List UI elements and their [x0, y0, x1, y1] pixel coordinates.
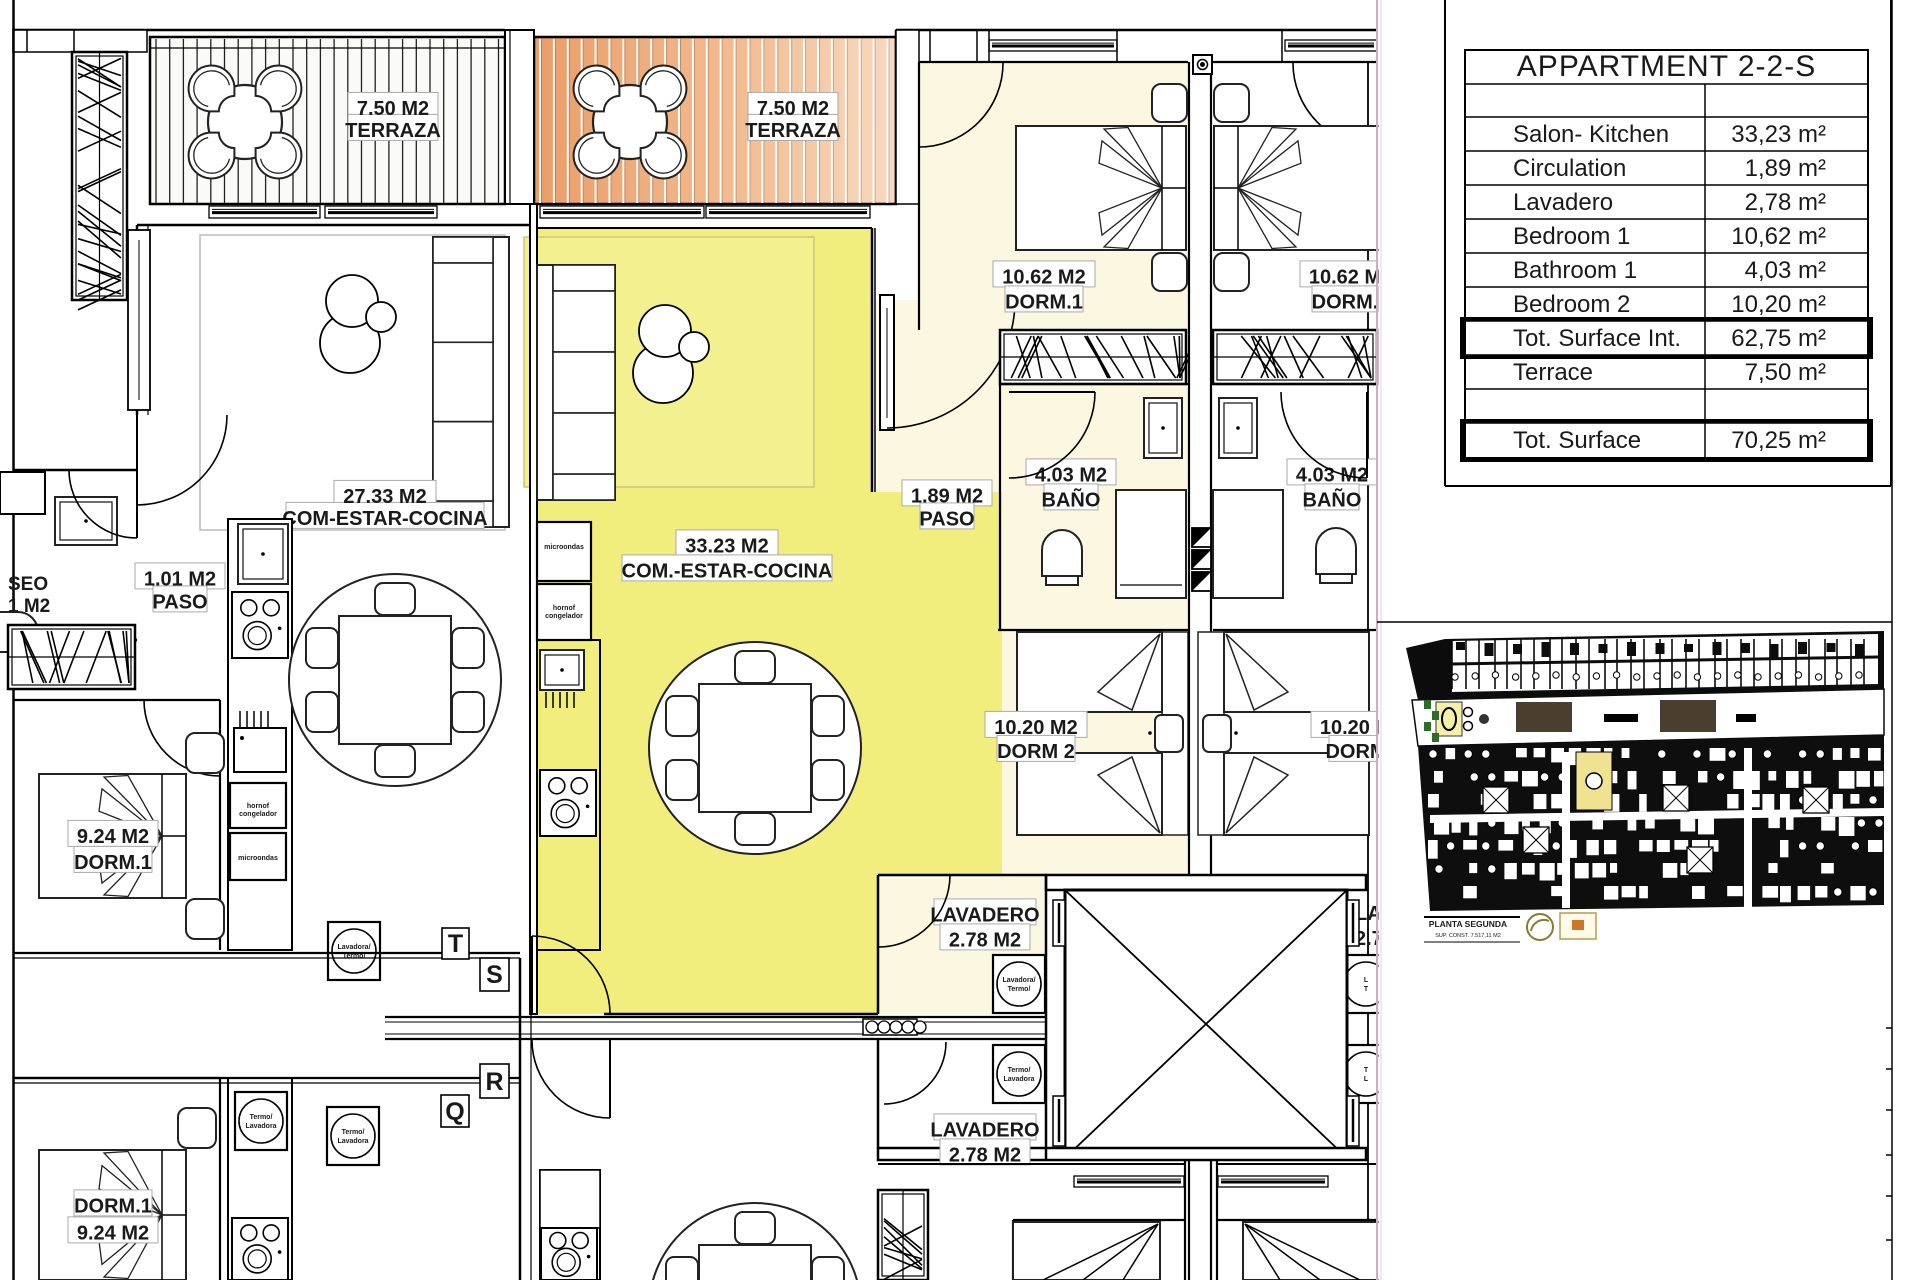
- svg-text:10,20 m²: 10,20 m²: [1731, 291, 1826, 318]
- svg-text:9.24 M2: 9.24 M2: [77, 1223, 149, 1245]
- svg-text:Tot. Surface: Tot. Surface: [1513, 427, 1641, 454]
- svg-text:R: R: [485, 1068, 503, 1096]
- svg-text:Circulation: Circulation: [1513, 155, 1626, 182]
- svg-text:7.50 M2: 7.50 M2: [757, 98, 829, 120]
- svg-text:SUP. CONST. 7.517,11 M2: SUP. CONST. 7.517,11 M2: [1435, 933, 1501, 939]
- svg-text:9.24 M2: 9.24 M2: [77, 826, 149, 848]
- svg-text:33.23 M2: 33.23 M2: [685, 536, 768, 558]
- svg-text:S: S: [486, 961, 503, 989]
- svg-text:T: T: [448, 930, 463, 958]
- svg-text:TERRAZA: TERRAZA: [745, 120, 841, 142]
- svg-text:Bathroom 1: Bathroom 1: [1513, 257, 1637, 284]
- svg-text:TERRAZA: TERRAZA: [345, 120, 441, 142]
- svg-text:Termo/: Termo/: [250, 1114, 273, 1121]
- svg-text:1.89 M2: 1.89 M2: [911, 486, 983, 508]
- svg-text:62,75 m²: 62,75 m²: [1731, 325, 1826, 352]
- svg-text:Termo/: Termo/: [1008, 1067, 1031, 1074]
- svg-text:hornof: hornof: [247, 803, 270, 810]
- svg-text:Lavadora: Lavadora: [1003, 1076, 1034, 1083]
- svg-text:7,50 m²: 7,50 m²: [1745, 359, 1826, 386]
- svg-text:Salon- Kitchen: Salon- Kitchen: [1513, 121, 1669, 148]
- svg-text:DORM.1: DORM.1: [74, 1196, 152, 1218]
- svg-text:10.62 M2: 10.62 M2: [1002, 267, 1085, 289]
- svg-text:27.33 M2: 27.33 M2: [343, 486, 426, 508]
- svg-text:2.78 M2: 2.78 M2: [949, 930, 1021, 952]
- svg-text:Lavadero: Lavadero: [1513, 189, 1613, 216]
- svg-text:70,25 m²: 70,25 m²: [1731, 427, 1826, 454]
- svg-text:Termo/: Termo/: [342, 1129, 365, 1136]
- svg-text:BAÑO: BAÑO: [1042, 489, 1101, 512]
- svg-text:COM-ESTAR-COCINA: COM-ESTAR-COCINA: [282, 508, 487, 530]
- svg-text:T: T: [1364, 1067, 1369, 1074]
- svg-text:10.62 M: 10.62 M: [1309, 267, 1381, 289]
- svg-text:SEO: SEO: [8, 574, 48, 595]
- svg-text:7.50 M2: 7.50 M2: [357, 98, 429, 120]
- svg-text:Tot. Surface Int.: Tot. Surface Int.: [1513, 325, 1681, 352]
- svg-text:COM.-ESTAR-COCINA: COM.-ESTAR-COCINA: [622, 561, 833, 583]
- svg-text:4.03 M2: 4.03 M2: [1035, 465, 1107, 487]
- svg-text:1.01 M2: 1.01 M2: [144, 569, 216, 591]
- svg-text:LAVADERO: LAVADERO: [930, 905, 1039, 927]
- svg-text:Lavadora: Lavadora: [245, 1123, 276, 1130]
- svg-text:DORM.1: DORM.1: [1005, 292, 1083, 314]
- svg-text:Q: Q: [445, 1098, 464, 1126]
- svg-text:1,89 m²: 1,89 m²: [1745, 155, 1826, 182]
- svg-text:2,78 m²: 2,78 m²: [1745, 189, 1826, 216]
- svg-text:Lavadora: Lavadora: [337, 1138, 368, 1145]
- svg-text:PASO: PASO: [152, 592, 207, 614]
- svg-text:Terrace: Terrace: [1513, 359, 1593, 386]
- svg-text:Termo/: Termo/: [1008, 986, 1031, 993]
- svg-text:microondas: microondas: [544, 544, 584, 551]
- svg-text:APPARTMENT 2-2-S: APPARTMENT 2-2-S: [1517, 50, 1816, 83]
- svg-text:Bedroom 1: Bedroom 1: [1513, 223, 1630, 250]
- svg-text:4.03 M2: 4.03 M2: [1296, 465, 1368, 487]
- svg-text:PLANTA SEGUNDA: PLANTA SEGUNDA: [1429, 919, 1507, 929]
- svg-text:congelador: congelador: [545, 613, 583, 620]
- svg-text:Lavadora/: Lavadora/: [1002, 977, 1035, 984]
- svg-text:congelador: congelador: [239, 811, 277, 818]
- svg-text:DORM.1: DORM.1: [74, 852, 152, 874]
- svg-text:hornof: hornof: [553, 605, 576, 612]
- svg-text:4,03 m²: 4,03 m²: [1745, 257, 1826, 284]
- svg-text:Bedroom 2: Bedroom 2: [1513, 291, 1630, 318]
- svg-text:BAÑO: BAÑO: [1303, 489, 1362, 512]
- svg-text:LAVADERO: LAVADERO: [930, 1120, 1039, 1142]
- svg-text:L: L: [1364, 977, 1369, 984]
- svg-text:DORM.: DORM.: [1312, 292, 1379, 314]
- svg-text:1 M2: 1 M2: [8, 596, 50, 617]
- svg-text:33,23 m²: 33,23 m²: [1731, 121, 1826, 148]
- svg-text:Lavadora/: Lavadora/: [337, 944, 370, 951]
- svg-text:T: T: [1364, 986, 1369, 993]
- svg-text:10.20 M2: 10.20 M2: [994, 717, 1077, 739]
- svg-text:microondas: microondas: [238, 855, 278, 862]
- svg-text:PASO: PASO: [919, 509, 974, 531]
- svg-text:L: L: [1364, 1076, 1369, 1083]
- svg-text:10,62 m²: 10,62 m²: [1731, 223, 1826, 250]
- svg-text:DORM 2: DORM 2: [997, 741, 1075, 763]
